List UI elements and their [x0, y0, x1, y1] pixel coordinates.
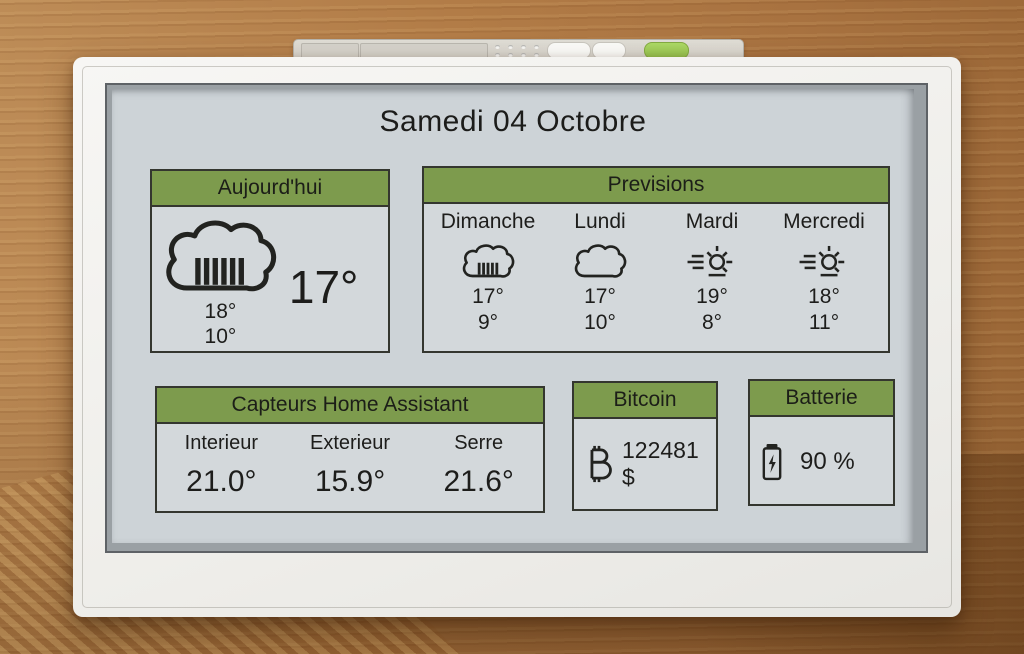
forecast-day-name: Lundi — [574, 210, 625, 234]
panel-sensors: Capteurs Home Assistant Interieur Exteri… — [155, 386, 545, 513]
panel-battery: Batterie 90 % — [748, 379, 895, 506]
panel-bitcoin-header: Bitcoin — [574, 383, 716, 419]
forecast-day-name: Mardi — [686, 210, 739, 234]
eink-device-frame: Samedi 04 Octobre Aujourd'hui — [73, 57, 961, 617]
forecast-day-column: Mercredi — [768, 210, 880, 336]
forecast-day-column: Mardi — [656, 210, 768, 336]
panel-forecast-header: Previsions — [424, 168, 888, 204]
forecast-high: 19° — [696, 284, 728, 310]
sensor-value: 21.6° — [414, 465, 543, 499]
eink-display: Samedi 04 Octobre Aujourd'hui — [112, 89, 914, 543]
rain-cloud-icon — [460, 240, 516, 284]
date-title: Samedi 04 Octobre — [112, 105, 914, 139]
vent-holes — [495, 45, 539, 57]
sensor-label: Interieur — [157, 432, 286, 455]
forecast-high: 17° — [584, 284, 616, 310]
forecast-low: 10° — [584, 310, 616, 336]
panel-battery-header: Batterie — [750, 381, 893, 417]
forecast-high: 17° — [472, 284, 504, 310]
cloud-icon — [572, 240, 628, 284]
forecast-low: 9° — [478, 310, 498, 336]
eink-screen-bezel: Samedi 04 Octobre Aujourd'hui — [105, 83, 928, 553]
sensor-value: 15.9° — [286, 465, 415, 499]
today-high: 18° — [205, 299, 237, 324]
panel-bitcoin: Bitcoin — [572, 381, 718, 511]
forecast-low: 8° — [702, 310, 722, 336]
panel-today: Aujourd'hui — [150, 169, 390, 353]
sensor-label: Exterieur — [286, 432, 415, 455]
forecast-day-column: Dimanche 17° — [432, 210, 544, 336]
battery-level: 90 % — [800, 448, 855, 476]
forecast-day-name: Mercredi — [783, 210, 865, 234]
panel-forecast: Previsions Dimanche — [422, 166, 890, 353]
bitcoin-price: 122481 $ — [622, 437, 716, 491]
sensor-label: Serre — [414, 432, 543, 455]
today-temperature: 17° — [289, 207, 388, 353]
hazy-sun-icon — [685, 240, 739, 284]
panel-sensors-header: Capteurs Home Assistant — [157, 388, 543, 424]
rain-cloud-icon — [160, 217, 280, 299]
battery-charging-icon — [760, 442, 784, 482]
panel-today-header: Aujourd'hui — [152, 171, 388, 207]
forecast-day-column: Lundi 17° 10° — [544, 210, 656, 336]
forecast-low: 11° — [809, 310, 839, 336]
hazy-sun-icon — [797, 240, 851, 284]
bitcoin-icon — [584, 443, 614, 485]
forecast-day-name: Dimanche — [441, 210, 536, 234]
sensor-value: 21.0° — [157, 465, 286, 499]
today-low: 10° — [205, 324, 237, 349]
forecast-high: 18° — [808, 284, 840, 310]
